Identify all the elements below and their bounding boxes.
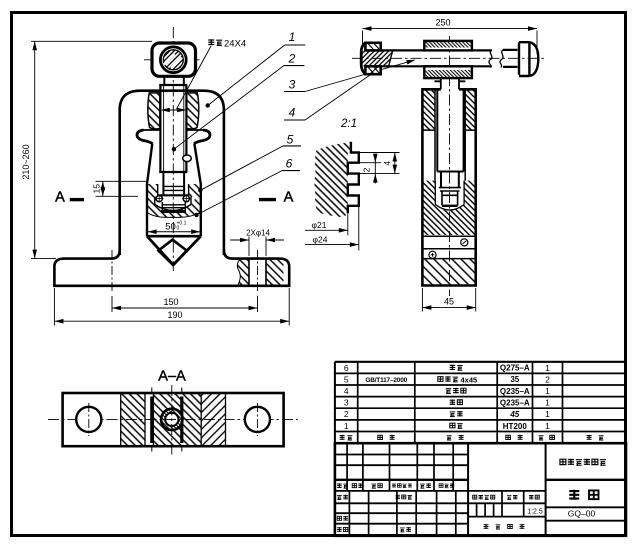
svg-text:2: 2 [545,374,550,384]
svg-text:190: 190 [167,310,182,320]
svg-text:45: 45 [509,410,519,419]
svg-text:1: 1 [344,421,349,431]
svg-text:1: 1 [545,386,550,396]
svg-text:35: 35 [510,375,519,384]
svg-text:4x45: 4x45 [461,375,478,384]
svg-text:1: 1 [545,398,550,408]
svg-text:250: 250 [435,18,450,28]
svg-text:GQ–00: GQ–00 [568,508,596,518]
svg-text:3: 3 [289,78,296,92]
svg-text:150: 150 [163,297,178,307]
svg-text:1: 1 [289,30,296,44]
svg-text:Q235–A: Q235–A [500,387,530,396]
svg-text:4: 4 [289,106,296,120]
svg-text:4: 4 [344,386,349,396]
svg-text:GB/T117–2000: GB/T117–2000 [365,377,407,384]
svg-text:2Xφ14: 2Xφ14 [246,229,270,238]
svg-text:A–A: A–A [158,369,186,385]
svg-text:5: 5 [344,374,349,384]
svg-text:A: A [55,190,65,206]
svg-text:2: 2 [362,167,372,172]
svg-text:45: 45 [444,297,454,307]
svg-text:6: 6 [286,157,293,171]
svg-text:HT200: HT200 [503,422,528,431]
svg-text:Q275–A: Q275–A [500,364,530,373]
svg-text:2:1: 2:1 [340,118,357,130]
svg-text:1: 1 [545,363,550,373]
svg-text:2: 2 [344,409,349,419]
svg-text:15: 15 [92,184,102,194]
svg-text:1: 1 [545,409,550,419]
svg-text:0: 0 [177,226,180,232]
svg-text:50: 50 [165,222,176,233]
svg-text:1: 1 [545,421,550,431]
svg-text:3: 3 [344,398,349,408]
svg-text:210~260: 210~260 [21,144,31,179]
svg-text:4: 4 [382,161,392,166]
svg-text:2: 2 [288,52,296,66]
svg-text:Q235–A: Q235–A [500,398,530,407]
svg-text:6: 6 [344,363,349,373]
svg-text:24X4: 24X4 [224,39,246,50]
svg-text:φ24: φ24 [313,234,328,244]
svg-text:A: A [284,190,294,206]
svg-text:1:2.5: 1:2.5 [527,508,543,515]
svg-text:φ21: φ21 [312,220,327,230]
svg-text:5: 5 [287,133,294,147]
